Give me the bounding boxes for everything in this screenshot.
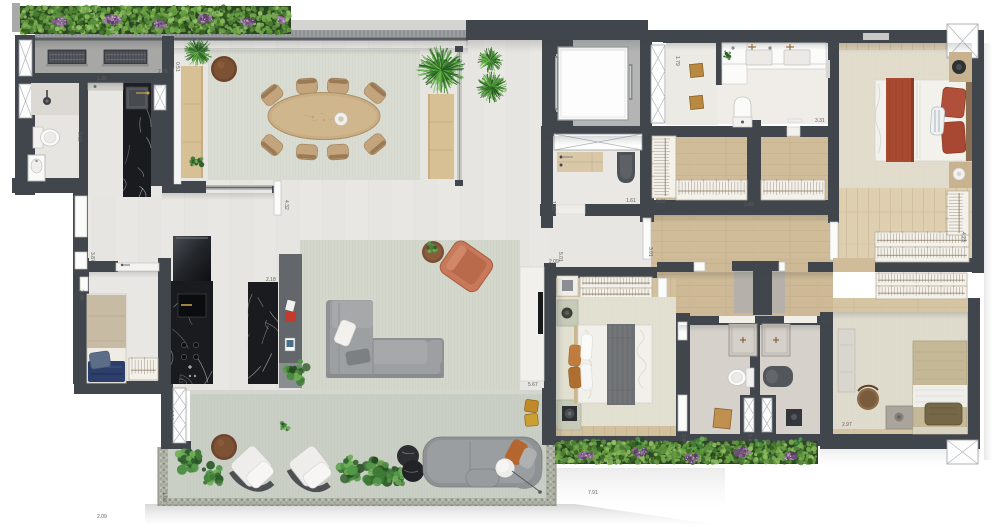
svg-text:1.61: 1.61: [626, 198, 636, 204]
svg-text:1.36: 1.36: [97, 76, 107, 82]
svg-text:3.31: 3.31: [815, 118, 825, 124]
svg-text:2.97: 2.97: [842, 422, 852, 428]
svg-text:1.42: 1.42: [744, 202, 754, 208]
svg-text:0.69: 0.69: [76, 132, 82, 142]
svg-text:7.91: 7.91: [588, 490, 598, 496]
svg-text:4.11: 4.11: [177, 374, 183, 384]
svg-text:3.87: 3.87: [89, 252, 95, 262]
svg-text:1.15: 1.15: [550, 201, 556, 211]
svg-text:2.40: 2.40: [78, 290, 84, 300]
svg-text:0.51: 0.51: [174, 62, 180, 72]
svg-text:2.02: 2.02: [656, 199, 666, 205]
svg-text:4.23: 4.23: [960, 232, 966, 242]
svg-text:1.08: 1.08: [161, 492, 167, 502]
svg-text:2.76: 2.76: [158, 69, 168, 75]
svg-text:2.46: 2.46: [680, 434, 686, 444]
svg-text:5.01: 5.01: [557, 252, 563, 262]
svg-text:4.32: 4.32: [283, 200, 289, 210]
svg-text:2.09: 2.09: [97, 514, 107, 520]
svg-text:1.79: 1.79: [674, 56, 680, 66]
svg-text:5.67: 5.67: [528, 382, 538, 388]
svg-text:2.18: 2.18: [266, 277, 276, 283]
svg-text:2.46: 2.46: [746, 434, 752, 444]
svg-text:1.14: 1.14: [168, 410, 174, 420]
svg-text:3.01: 3.01: [647, 247, 653, 257]
